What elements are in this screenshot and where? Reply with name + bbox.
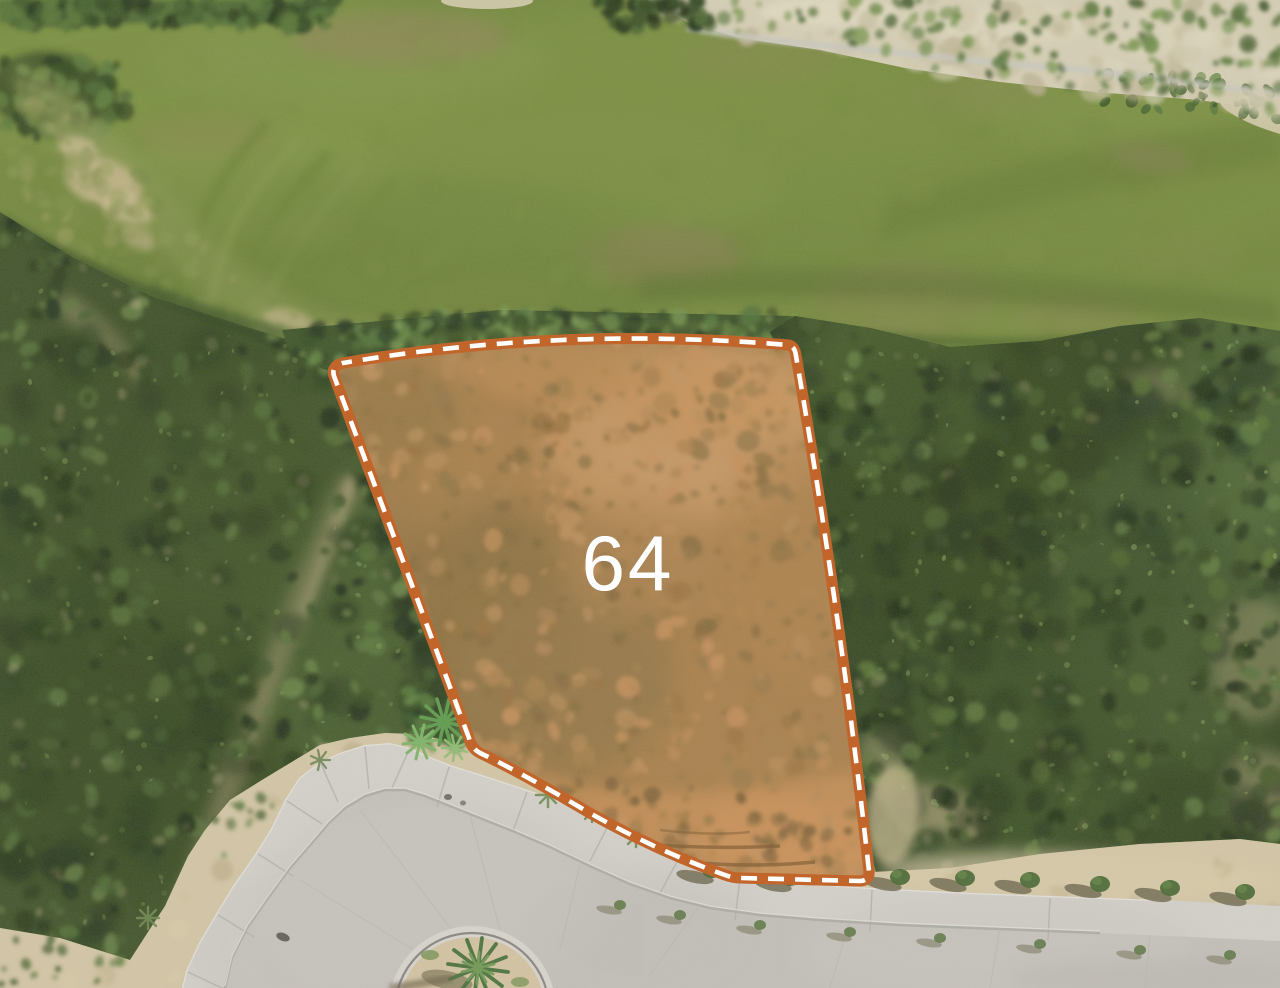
svg-text:64: 64	[582, 519, 675, 607]
